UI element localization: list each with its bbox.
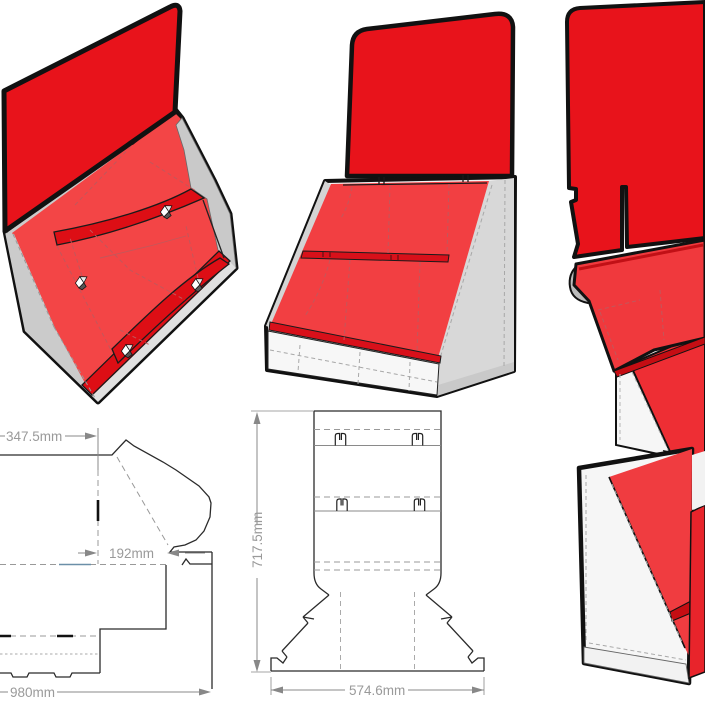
svg-text:717.5mm: 717.5mm [250, 512, 265, 568]
svg-text:347.5mm: 347.5mm [6, 429, 62, 444]
svg-text:980mm: 980mm [10, 685, 55, 700]
svg-text:574.6mm: 574.6mm [349, 683, 405, 698]
svg-text:192mm: 192mm [109, 546, 154, 561]
